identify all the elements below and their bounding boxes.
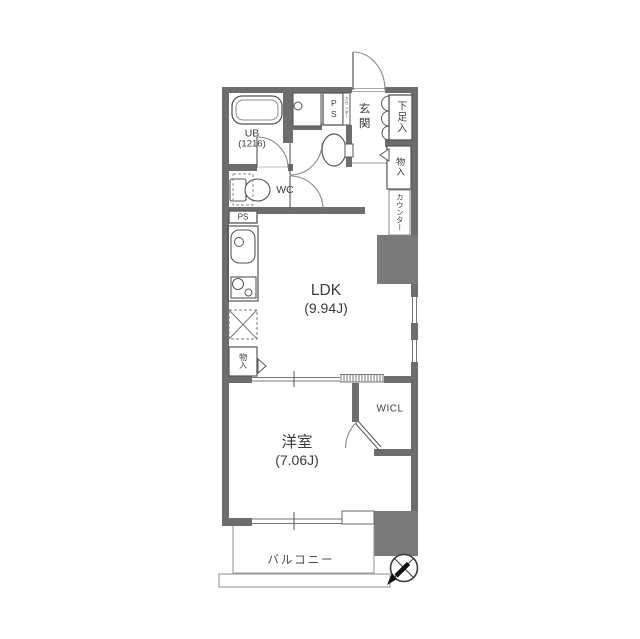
unit-bath-size: (1216) <box>238 140 265 151</box>
kitchen-sink-icon <box>231 230 255 263</box>
washing-machine-icon <box>293 93 321 126</box>
counter-label: カウンター <box>395 193 404 231</box>
western-room-size: (7.06J) <box>275 452 319 468</box>
floor-plan-drawing <box>0 0 640 639</box>
toilet-icon <box>230 174 270 205</box>
compass-icon <box>387 555 418 586</box>
wicl-door <box>346 421 382 450</box>
bathtub-icon <box>232 96 282 124</box>
western-room-label: 洋室 (7.06J) <box>275 434 319 468</box>
cabinet-door-arc <box>382 126 389 140</box>
western-room-name: 洋室 <box>275 434 319 452</box>
toilet-label: WC <box>276 184 294 196</box>
sliding-partition <box>252 371 384 387</box>
storage-door-arrow <box>258 359 266 373</box>
ldk-size: (9.94J) <box>304 300 348 316</box>
floor-plan: UB (1216) PS カウンター 玄関 下足入 物入 カウンター WC PS… <box>0 0 640 639</box>
pipe-space-upper-label: PS <box>328 98 338 120</box>
faucet-icon <box>235 238 244 247</box>
balcony-label: バルコニー <box>267 554 334 567</box>
refrigerator-space <box>229 310 257 339</box>
storage-door-arrow <box>380 149 389 161</box>
kitchen-storage-label: 物入 <box>238 353 247 369</box>
walk-in-closet-label: WICL <box>377 403 404 415</box>
entrance-label: 玄関 <box>356 103 369 132</box>
counter-small-label: カウンター <box>344 97 349 120</box>
column-block-upper <box>377 235 418 284</box>
balcony-window <box>252 511 374 530</box>
entrance-door <box>352 52 385 92</box>
interior-doors <box>257 137 323 209</box>
column-block-lower <box>374 511 418 556</box>
kitchen <box>228 226 258 301</box>
ldk-label: LDK (9.94J) <box>304 282 348 316</box>
pipe-space-lower-label: PS <box>238 212 249 221</box>
shoe-box-label: 下足入 <box>394 101 406 134</box>
hall-storage-label: 物入 <box>395 157 405 177</box>
cabinet-door-arc <box>382 111 390 126</box>
cabinet-door-arc <box>382 96 390 111</box>
ldk-name: LDK <box>304 282 348 300</box>
unit-bath-label: UB (1216) <box>238 128 265 151</box>
